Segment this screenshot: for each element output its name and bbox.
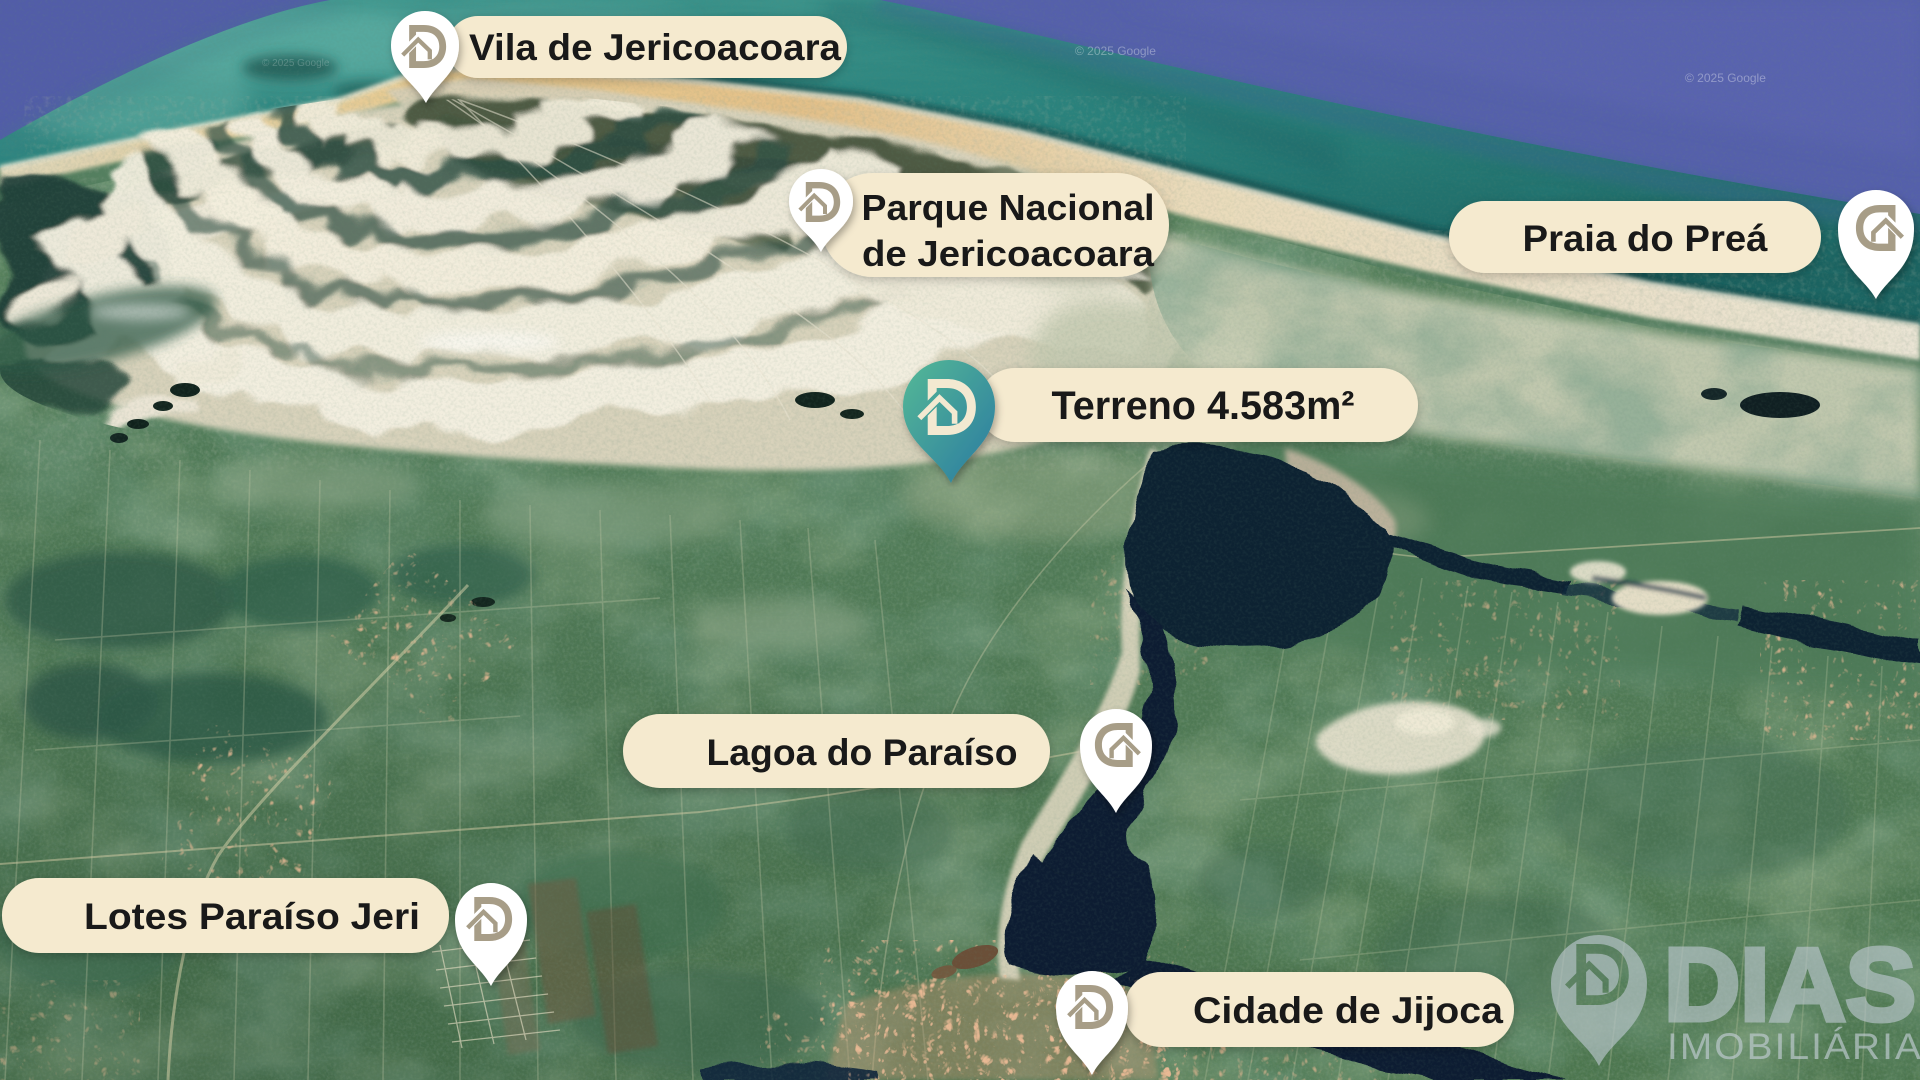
svg-text:Vila de Jericoacoara: Vila de Jericoacoara	[469, 27, 841, 68]
svg-text:Lotes Paraíso Jeri: Lotes Paraíso Jeri	[84, 896, 420, 937]
svg-text:Terreno 4.583m²: Terreno 4.583m²	[1052, 384, 1355, 428]
svg-text:Praia do Preá: Praia do Preá	[1523, 218, 1768, 259]
svg-text:Lagoa do Paraíso: Lagoa do Paraíso	[707, 732, 1018, 773]
svg-text:DIAS: DIAS	[1664, 927, 1916, 1042]
svg-text:Cidade de Jijoca: Cidade de Jijoca	[1193, 990, 1503, 1031]
svg-text:Parque Nacional: Parque Nacional	[862, 187, 1155, 228]
svg-text:de Jericoacoara: de Jericoacoara	[862, 233, 1155, 274]
svg-text:IMOBILIÁRIA: IMOBILIÁRIA	[1667, 1026, 1920, 1067]
